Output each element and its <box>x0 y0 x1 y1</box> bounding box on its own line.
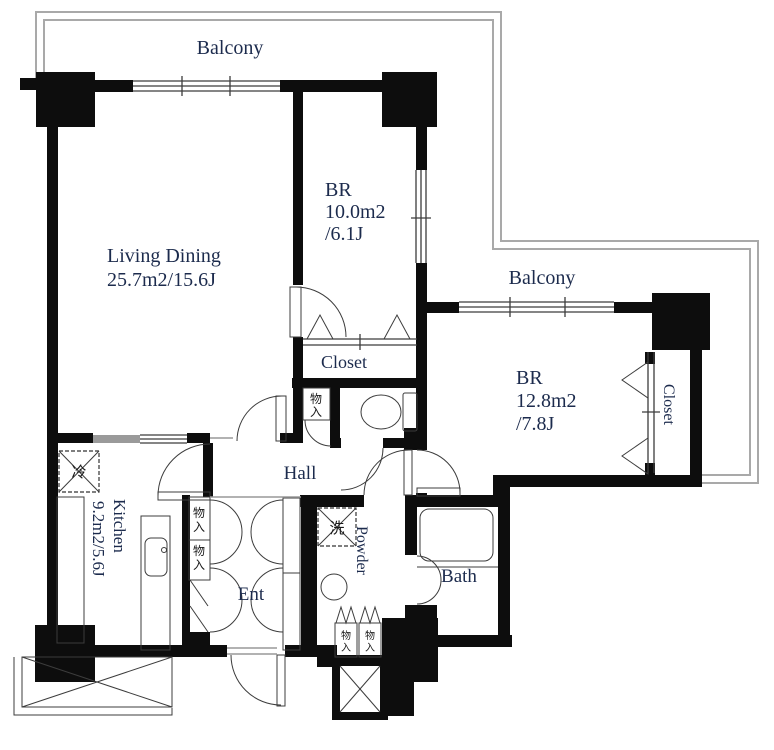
wall-br2-west-bit <box>416 493 427 507</box>
door-bath-folding <box>417 556 441 604</box>
door-entrance <box>227 648 285 706</box>
label-living-dining-area: 25.7m2/15.6J <box>107 269 216 291</box>
svg-text:物: 物 <box>310 392 322 406</box>
wall-ld-br1-upper <box>293 85 303 285</box>
wall-west <box>47 127 58 627</box>
faucet <box>162 548 167 553</box>
door-toilet <box>341 448 383 490</box>
door-living <box>210 396 286 441</box>
window-kitchen-counter <box>93 435 187 443</box>
door-kitchen <box>158 444 210 500</box>
wall-ent-east <box>301 497 317 657</box>
label-closet-top: Closet <box>321 352 367 372</box>
door-br1 <box>290 287 346 337</box>
label-ent: Ent <box>238 584 265 605</box>
door-br2 <box>417 450 460 496</box>
svg-text:入: 入 <box>365 643 375 654</box>
label-fridge: 冷 <box>71 463 86 481</box>
label-storage-ent-2: 物 入 <box>193 544 205 572</box>
wall-bath-east <box>498 487 510 647</box>
label-br1-area1: 10.0m2 <box>325 201 386 223</box>
label-storage-powder-2: 物 入 <box>365 629 375 654</box>
label-kitchen-area: 9.2m2/5.6J <box>89 501 108 577</box>
pillar-top-left <box>36 72 95 127</box>
wall-wc-south-b <box>383 438 417 448</box>
closet1-front <box>303 315 417 350</box>
label-kitchen-name: Kitchen <box>110 499 129 553</box>
closet-fronts <box>303 315 660 474</box>
wall-br1-east-a <box>416 127 427 170</box>
svg-text:入: 入 <box>193 520 205 534</box>
label-balcony-top: Balcony <box>197 37 264 59</box>
wall-tab-topleft <box>20 78 36 90</box>
floor-plan: Balcony Balcony Living Dining 25.7m2/15.… <box>0 0 774 750</box>
walls <box>20 72 710 716</box>
label-br2-area1: 12.8m2 <box>516 390 577 412</box>
svg-text:物: 物 <box>365 629 375 642</box>
pipe-shaft <box>332 658 388 720</box>
doors-ent-storage-west <box>210 500 242 632</box>
svg-text:入: 入 <box>341 643 351 654</box>
wall-br2-north-b <box>614 302 654 313</box>
wall-ld-south-b <box>187 433 210 443</box>
label-br1-area2: /6.1J <box>325 223 364 245</box>
label-br1-name: BR <box>325 179 352 201</box>
label-balcony-right: Balcony <box>509 267 576 289</box>
doors-ent-storage-east <box>251 500 283 632</box>
bifold-triangle <box>622 362 648 398</box>
label-storage-ent-1: 物 入 <box>193 506 205 534</box>
svg-text:入: 入 <box>193 558 205 572</box>
label-br2-area2: /7.8J <box>516 413 555 435</box>
wall-ld-south-a <box>47 433 93 443</box>
label-closet-right: Closet <box>660 384 677 425</box>
pillar-top-right <box>652 293 710 350</box>
kitchen-counter-sink <box>141 516 170 650</box>
window-ld-north <box>133 76 280 96</box>
wall-br2-north-a <box>427 302 459 313</box>
kitchen-counter-left <box>57 497 84 643</box>
window-br2-north <box>459 297 614 317</box>
label-storage-powder-1: 物 入 <box>341 629 351 654</box>
svg-text:物: 物 <box>193 544 205 558</box>
wall-ld-br1-lower <box>293 337 303 443</box>
wall-kitchen-chunk <box>182 632 210 657</box>
door-storage-hall <box>305 420 331 446</box>
wall-closet-east <box>690 350 702 487</box>
wall-south-kitchen <box>95 645 182 657</box>
wall-corner-chunk <box>382 618 438 682</box>
wall-br2-south <box>498 475 702 487</box>
svg-text:入: 入 <box>310 405 322 419</box>
wall-bath-west-a <box>405 507 417 555</box>
floor-plan-page: Balcony Balcony Living Dining 25.7m2/15.… <box>0 0 774 750</box>
closet-right-front <box>622 352 660 474</box>
bifold-triangle <box>622 438 648 474</box>
label-living-dining-name: Living Dining <box>107 245 221 267</box>
wall-south-ent-a <box>210 645 227 657</box>
label-bath: Bath <box>441 566 477 587</box>
label-hall: Hall <box>284 463 317 484</box>
pillar-top-mid <box>382 72 437 127</box>
svg-text:物: 物 <box>193 506 205 520</box>
wall-wc-west <box>330 383 340 448</box>
door-powder <box>364 450 412 495</box>
bathtub <box>417 509 498 567</box>
pillar-bottom-left <box>35 625 95 682</box>
wall-ps-side <box>386 680 414 716</box>
wall-closet1-south <box>292 378 427 388</box>
toilet <box>361 393 417 431</box>
svg-text:物: 物 <box>341 629 351 642</box>
label-washer: 洗 <box>329 519 344 537</box>
bifold-triangle <box>384 315 410 339</box>
wall-kitchen-entry <box>203 443 213 497</box>
label-br2-name: BR <box>516 367 543 389</box>
label-storage-hall: 物 入 <box>310 392 322 419</box>
wall-br1-east-b <box>416 263 427 450</box>
wall-bath-south <box>437 635 512 647</box>
wall-north-a <box>95 80 133 92</box>
bifold-triangle <box>307 315 333 339</box>
window-br1-east <box>411 170 431 263</box>
powder-sink <box>321 574 347 600</box>
label-powder: Powder <box>353 526 370 576</box>
ent-shoe-cabinet <box>283 498 300 650</box>
